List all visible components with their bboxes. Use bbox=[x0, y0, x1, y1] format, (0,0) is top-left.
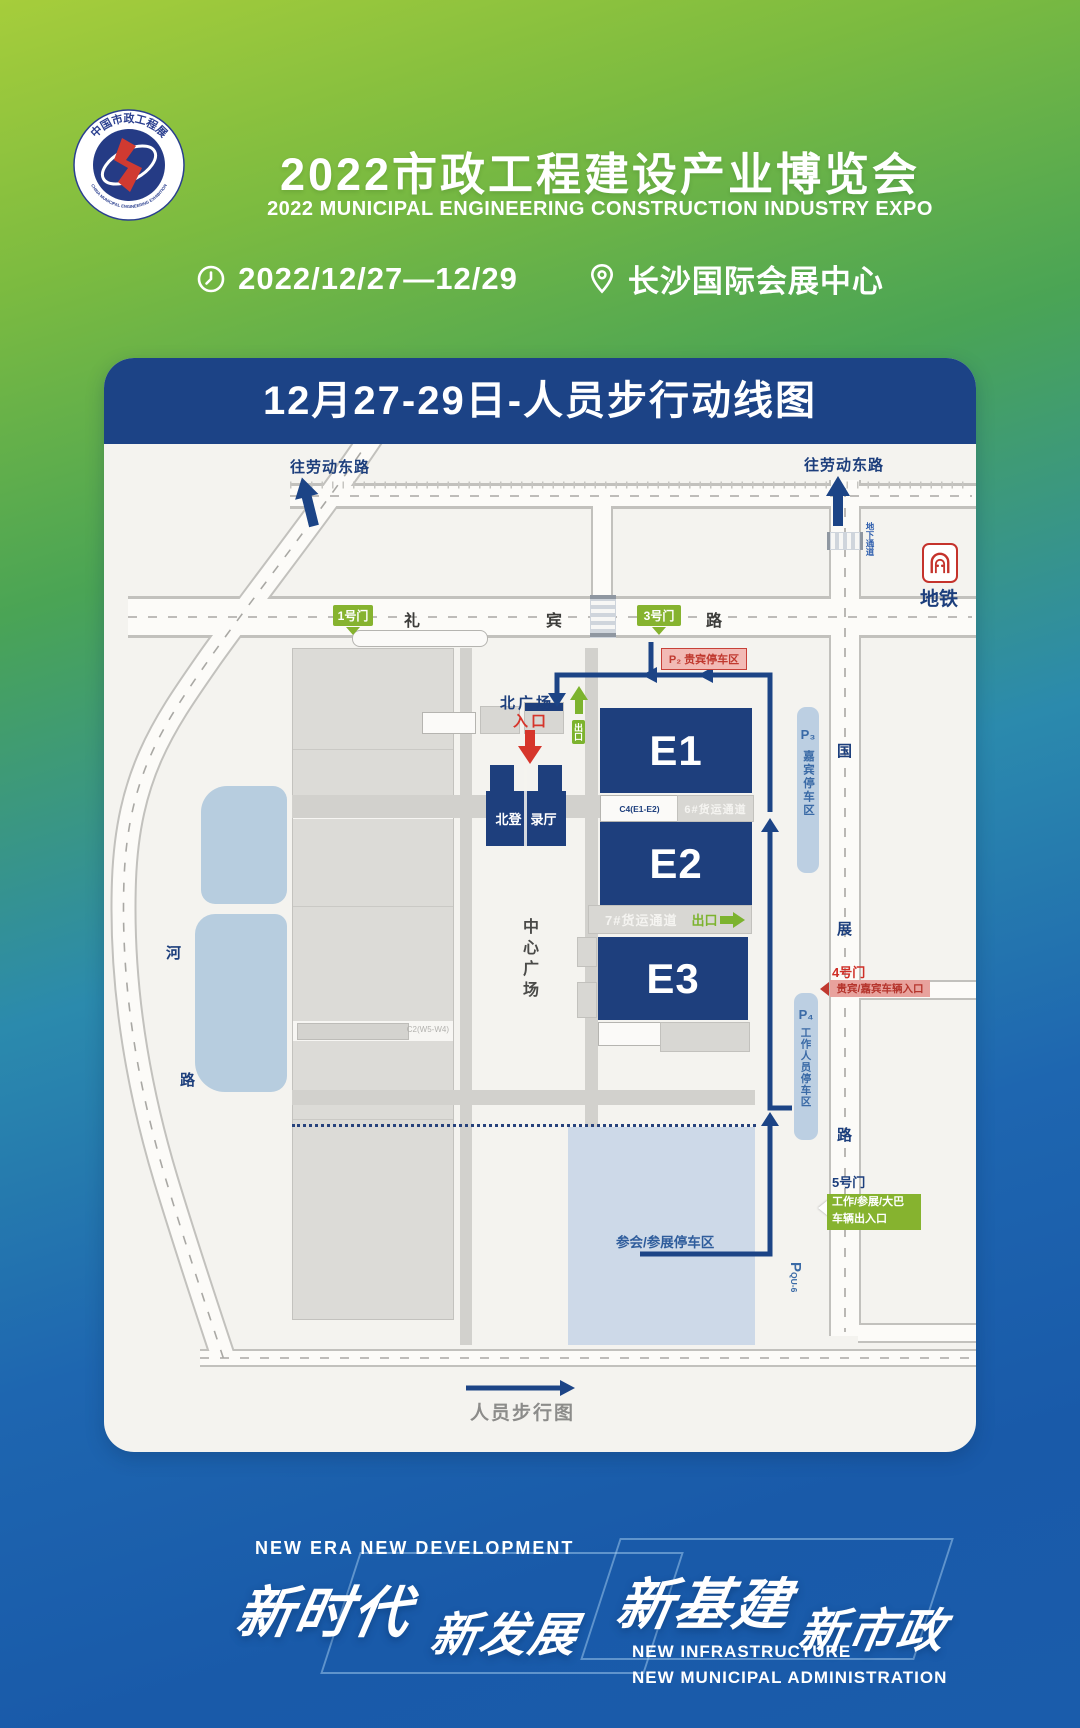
expo-poster: 中国市政工程展 CHINA MUNICIPAL ENGINEERING EXHI… bbox=[0, 0, 1080, 1728]
legend-walk-label: 人员步行图 bbox=[470, 1398, 575, 1425]
north-entry-label: 入口 bbox=[513, 710, 549, 731]
slogan-3: 新基建 bbox=[611, 1560, 799, 1641]
hall-e1: E1 bbox=[600, 708, 752, 793]
parking-p4-strip: P₄ 工作人员停车区 bbox=[794, 993, 818, 1140]
cargo-lane-6: 6#货运通道 bbox=[677, 795, 754, 822]
libin-char-2: 宾 bbox=[546, 607, 562, 631]
pond-lower bbox=[195, 914, 287, 1092]
footer-banner: NEW ERA NEW DEVELOPMENT 新时代 新发展 新基建 新市政 … bbox=[0, 1452, 1080, 1728]
cargo-lane-7-label: 7#货运通道 bbox=[605, 910, 677, 929]
guozhan-char-1: 国 bbox=[837, 740, 852, 761]
hexi-char-1: 河 bbox=[166, 942, 181, 963]
west-hall-label-2: C2(W5-W4) bbox=[407, 1025, 449, 1034]
expo-logo-badge: 中国市政工程展 CHINA MUNICIPAL ENGINEERING EXHI… bbox=[72, 108, 186, 222]
hexi-char-2: 路 bbox=[180, 1069, 195, 1090]
center-plaza-label: 中心广场 bbox=[516, 918, 540, 1002]
registration-hall-label-right: 录厅 bbox=[531, 809, 557, 828]
gate-1-marker bbox=[346, 627, 360, 635]
corridor-c4-label: C4(E1-E2) bbox=[600, 795, 679, 822]
south-block-2 bbox=[660, 1022, 750, 1052]
vip-vehicle-entry-tag: 贵宾/嘉宾车辆入口 bbox=[830, 980, 930, 997]
work-vehicle-line1: 工作/参展/大巴 bbox=[832, 1194, 921, 1211]
west-halls-block: C3(W1-W3) C2(W5-W4) bbox=[292, 648, 454, 1320]
parking-p4-name: 工作人员停车区 bbox=[799, 1027, 814, 1108]
north-registration-hall: 北登 录厅 bbox=[486, 765, 566, 846]
gate-4: 4号门 bbox=[832, 962, 865, 981]
work-vehicle-entry-tag: 工作/参展/大巴 车辆出入口 bbox=[827, 1194, 921, 1230]
page-title: 2022市政工程建设产业博览会 bbox=[200, 138, 1000, 203]
attendee-parking-label: 参会/参展停车区 bbox=[616, 1231, 714, 1251]
attendee-parking-area: 参会/参展停车区 bbox=[568, 1127, 755, 1345]
registration-hall-label-left: 北登 bbox=[495, 809, 521, 828]
kiosk-1 bbox=[422, 712, 476, 734]
location-pin-icon bbox=[588, 263, 616, 295]
cargo-lane-7: 7#货运通道 出口 bbox=[588, 905, 752, 934]
south-cross-walkway bbox=[292, 1090, 755, 1105]
gate-5: 5号门 bbox=[832, 1172, 865, 1191]
footer-sub-en-2: NEW MUNICIPAL ADMINISTRATION bbox=[632, 1668, 947, 1688]
libin-char-1: 礼 bbox=[404, 607, 420, 631]
event-date-item: 2022/12/27—12/29 bbox=[196, 256, 518, 301]
libin-char-3: 路 bbox=[706, 607, 722, 631]
event-date: 2022/12/27—12/29 bbox=[238, 261, 518, 297]
gate-4-arrow bbox=[820, 982, 829, 996]
route-map-card: 12月27-29日-人员步行动线图 bbox=[104, 358, 976, 1452]
to-laodong-right-label: 往劳动东路 bbox=[804, 454, 884, 475]
expo-logo: 中国市政工程展 CHINA MUNICIPAL ENGINEERING EXHI… bbox=[72, 108, 186, 222]
exit-right-arrow-icon bbox=[720, 911, 746, 929]
parking-pqu6-label: PQU-6 bbox=[786, 1262, 804, 1292]
to-laodong-left-label: 往劳动东路 bbox=[290, 456, 370, 477]
south-block-1 bbox=[598, 1022, 662, 1046]
slogan-2: 新发展 bbox=[426, 1596, 585, 1665]
hall-e2: E2 bbox=[600, 822, 752, 905]
event-info-row: 2022/12/27—12/29 长沙国际会展中心 bbox=[0, 256, 1080, 301]
parking-p4-label: P₄ bbox=[799, 1007, 814, 1022]
work-vehicle-line2: 车辆出入口 bbox=[832, 1211, 921, 1228]
venue-map: C3(W1-W3) C2(W5-W4) bbox=[104, 444, 976, 1452]
gate-3: 3号门 bbox=[637, 605, 681, 626]
gate-3-marker bbox=[652, 627, 666, 635]
metro-icon bbox=[922, 543, 958, 583]
boundary-fence bbox=[292, 1124, 756, 1127]
guozhan-char-2: 展 bbox=[837, 918, 852, 939]
underpass-label: 地下通道 bbox=[864, 522, 876, 556]
service-block-1 bbox=[577, 937, 597, 967]
event-venue-item: 长沙国际会展中心 bbox=[588, 256, 884, 301]
slogan-1: 新时代 bbox=[231, 1568, 419, 1649]
map-title-bar: 12月27-29日-人员步行动线图 bbox=[104, 358, 976, 444]
clock-icon bbox=[196, 264, 226, 294]
footer-sub-en-1: NEW INFRASTRUCTURE bbox=[632, 1642, 851, 1662]
parking-p3-name: 嘉宾停车区 bbox=[800, 750, 816, 818]
page-subtitle: 2022 MUNICIPAL ENGINEERING CONSTRUCTION … bbox=[200, 198, 1000, 221]
pond-upper bbox=[201, 786, 287, 904]
footer-tagline-en: NEW ERA NEW DEVELOPMENT bbox=[255, 1538, 574, 1559]
service-block-2 bbox=[577, 982, 597, 1018]
parking-p3-label: P₃ bbox=[801, 727, 816, 742]
event-venue: 长沙国际会展中心 bbox=[628, 256, 884, 301]
plaza-west-walk bbox=[460, 648, 472, 1345]
guozhan-char-3: 路 bbox=[837, 1124, 852, 1145]
parking-p2-tag: P₂ 贵宾停车区 bbox=[661, 648, 747, 670]
parking-p3-strip: P₃ 嘉宾停车区 bbox=[797, 707, 819, 873]
north-exit-tag: 出口 bbox=[572, 720, 585, 744]
gate-1: 1号门 bbox=[333, 605, 373, 626]
east-exit-label: 出口 bbox=[691, 910, 717, 929]
hall-e3: E3 bbox=[598, 937, 748, 1020]
bus-bay bbox=[352, 630, 488, 647]
metro-label: 地铁 bbox=[916, 584, 962, 611]
